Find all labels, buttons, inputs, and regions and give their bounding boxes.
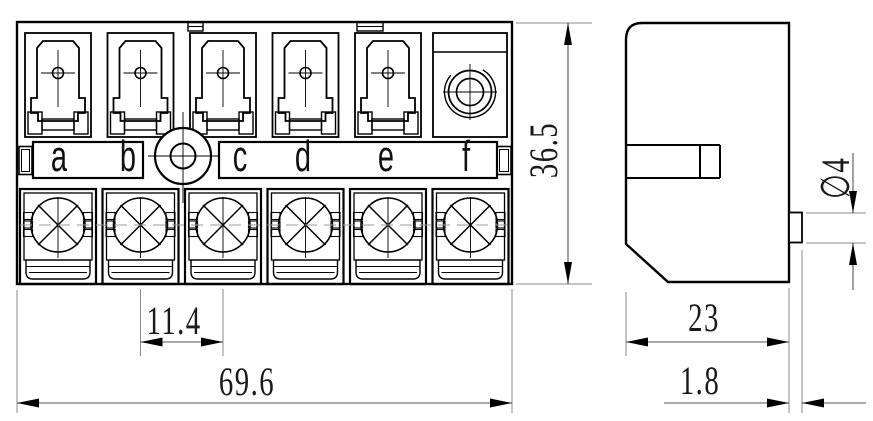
dimension-terminal-pitch: 11.4 — [141, 289, 224, 356]
arrow-left — [17, 399, 39, 408]
arrow-right — [767, 399, 789, 408]
arrow-up — [564, 23, 572, 45]
mounting-tab — [789, 213, 802, 243]
arrow-down — [564, 262, 572, 284]
dim-text-side-depth: 23 — [688, 295, 720, 340]
dimension-hole-diameter: ∅4 — [806, 153, 866, 290]
arrow-up — [849, 243, 857, 265]
terminal-label-d: d — [295, 131, 311, 181]
terminal-label-f: f — [462, 131, 471, 181]
arrow-right — [201, 338, 223, 347]
technical-drawing-page: a b c d e f 36.5 11.4 — [0, 0, 873, 421]
dim-text-overall-width: 69.6 — [219, 359, 275, 404]
dim-text-overall-height: 36.5 — [521, 122, 566, 178]
dim-text-terminal-pitch: 11.4 — [146, 298, 201, 343]
arrow-right — [490, 399, 512, 408]
terminal-label-a: a — [51, 131, 67, 181]
arrow-left — [626, 338, 648, 347]
terminal-label-b: b — [120, 131, 136, 181]
terminal-label-c: c — [233, 131, 248, 181]
arrow-right — [767, 338, 789, 347]
dim-text-tab-thickness: 1.8 — [680, 358, 720, 403]
marking-strip-right — [219, 142, 497, 178]
terminal-block-drawing-canvas: a b c d e f 36.5 11.4 — [0, 0, 873, 421]
side-view — [626, 23, 802, 282]
arrow-left — [802, 399, 824, 408]
front-view: a b c d e f — [17, 22, 512, 284]
side-body-outline — [626, 23, 789, 282]
dimension-overall-height: 36.5 — [516, 23, 592, 284]
terminal-label-e: e — [378, 131, 394, 181]
dim-text-hole-diameter: ∅4 — [813, 157, 858, 199]
dimension-overall-width: 69.6 — [17, 289, 512, 413]
